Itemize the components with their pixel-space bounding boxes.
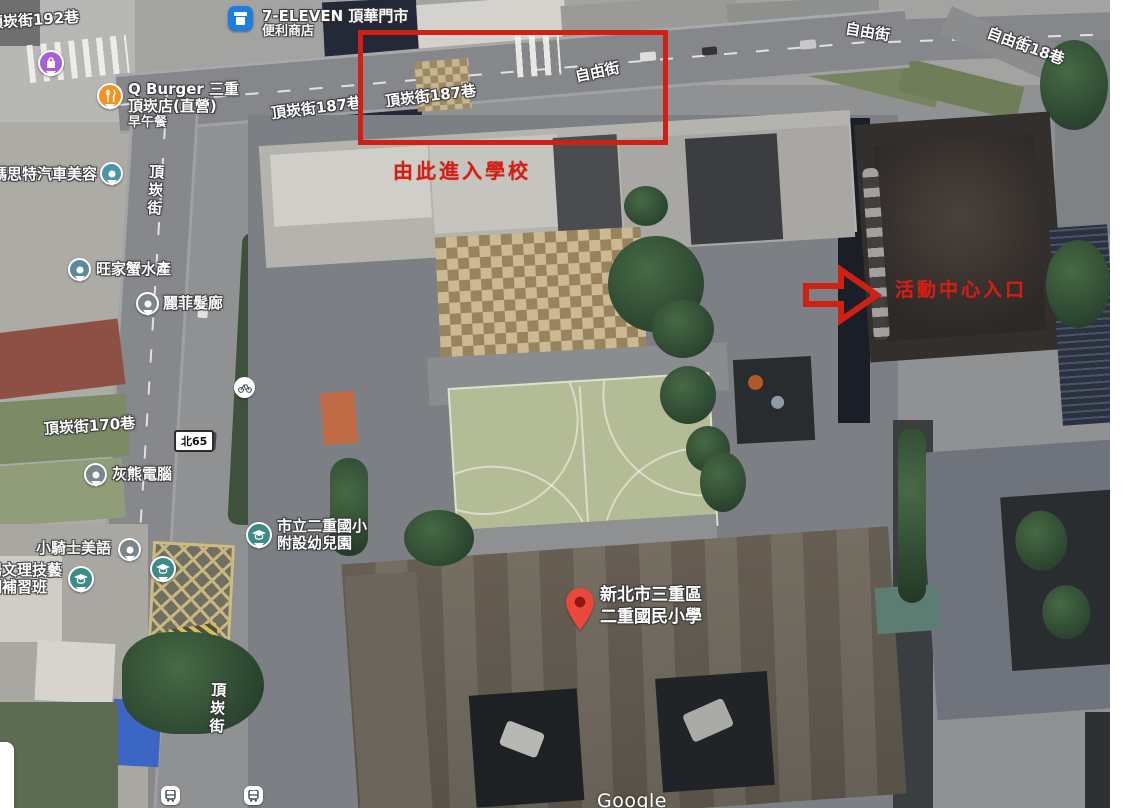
graduation-cap-icon bbox=[68, 566, 94, 592]
inner-court-west bbox=[469, 688, 585, 807]
activity-center-roof bbox=[873, 135, 1046, 342]
poi-label: 瑪思特汽車美容 bbox=[0, 166, 97, 183]
map-pin bbox=[136, 292, 159, 315]
annotation-activity-text: 活動中心入口 bbox=[895, 275, 1027, 302]
poi-label: Q Burger 三重 頂崁店(直營) 早午餐 bbox=[128, 81, 239, 130]
roof-white-southwest bbox=[34, 640, 115, 704]
map-pin bbox=[68, 258, 91, 281]
tree-alley-east bbox=[898, 428, 926, 603]
shopping-icon bbox=[38, 50, 64, 76]
poi-label: 小騎士美語 bbox=[36, 540, 111, 557]
roof-green-west-2 bbox=[0, 458, 126, 527]
playground-equipment bbox=[499, 720, 546, 759]
poi-label: 市立二重國小 附設幼兒園 bbox=[277, 518, 367, 553]
tree-east-mid bbox=[1046, 240, 1110, 328]
poi-label: 旺家蟹水產 bbox=[96, 261, 171, 278]
street-label-dingkan-vertical-north: 頂崁街 bbox=[145, 164, 165, 219]
bus-stop-icon[interactable] bbox=[161, 786, 180, 805]
satellite-map[interactable]: 頂崁街192巷 頂崁街187巷 頂崁街187巷 自由街 自由街 自由街18巷 頂… bbox=[0, 0, 1128, 808]
tree-cluster-southwest bbox=[122, 632, 264, 734]
inner-court-east bbox=[655, 671, 775, 793]
building-southeast bbox=[919, 440, 1128, 721]
building-orange-roof bbox=[320, 391, 358, 446]
poi-label: 灰熊電腦 bbox=[112, 466, 172, 483]
tree-mid-1 bbox=[652, 300, 714, 358]
tree-field-east bbox=[700, 452, 746, 512]
tree-mid-2 bbox=[660, 366, 716, 424]
map-edge-white bbox=[1110, 0, 1128, 808]
poi-label: 麗菲髮廊 bbox=[163, 295, 223, 312]
map-pin bbox=[84, 463, 107, 486]
poi-school-place[interactable]: 新北市三重區 二重國民小學 bbox=[566, 588, 594, 634]
street-label-dingkan-vertical-south: 頂崁街 bbox=[207, 682, 227, 737]
play-structure bbox=[748, 375, 764, 391]
annotation-entry-rectangle bbox=[358, 30, 668, 145]
tree-inner-court bbox=[1013, 509, 1069, 572]
bicycle-icon[interactable] bbox=[234, 377, 255, 398]
car bbox=[702, 46, 718, 55]
route-badge-bei65: 北65 bbox=[174, 430, 214, 452]
red-map-pin-icon bbox=[566, 588, 594, 630]
tree-field-west bbox=[404, 510, 474, 566]
graduation-cap-icon bbox=[246, 522, 272, 548]
graduation-cap-icon[interactable] bbox=[150, 556, 176, 582]
building-activity-center bbox=[854, 111, 1066, 362]
field-center-line bbox=[579, 386, 590, 528]
map-pin bbox=[118, 538, 141, 561]
building-school-south bbox=[341, 526, 906, 808]
bus-stop-icon[interactable] bbox=[244, 786, 263, 805]
roof-white-mid bbox=[429, 134, 562, 234]
playground-dark-east bbox=[733, 356, 815, 444]
info-card-edge[interactable] bbox=[0, 742, 14, 808]
annotation-entry-text: 由此進入學校 bbox=[393, 155, 531, 184]
tree-inner-court bbox=[1041, 584, 1093, 641]
tree-courtyard-north bbox=[624, 186, 668, 226]
poi-label: 場文理技藝 期補習班 bbox=[0, 562, 62, 597]
green-yard-southwest bbox=[0, 702, 118, 808]
inner-court-southeast bbox=[1000, 490, 1122, 671]
playground-equipment bbox=[682, 698, 734, 743]
map-pin bbox=[100, 162, 123, 185]
convenience-store-icon bbox=[228, 6, 253, 31]
play-structure bbox=[771, 395, 785, 409]
roof-dark-east bbox=[685, 133, 783, 244]
google-logo: Google bbox=[597, 790, 667, 808]
car bbox=[800, 39, 817, 49]
annotation-arrow-right bbox=[799, 261, 883, 329]
place-label: 新北市三重區 二重國民小學 bbox=[600, 584, 702, 628]
restaurant-icon bbox=[97, 83, 123, 109]
